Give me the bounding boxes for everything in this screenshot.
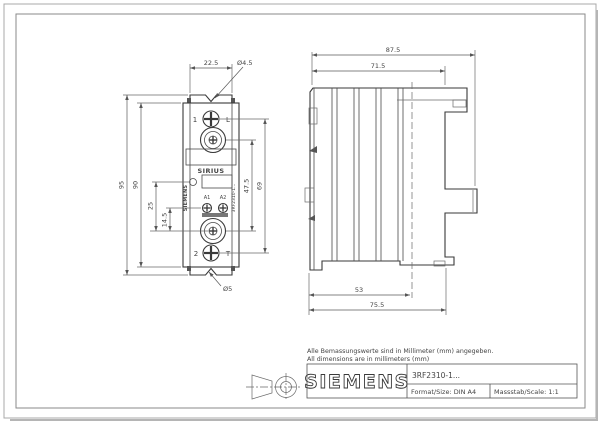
dim-depth-overall: 87.5: [386, 46, 400, 54]
dim-height-overall: 95: [118, 181, 126, 189]
a2-label: A2: [220, 195, 227, 201]
terminal-l-label: L: [226, 116, 230, 124]
dim-height-body: 90: [132, 181, 140, 189]
dim-ctrl-terminal: 14.5: [161, 213, 169, 227]
model-vertical-label: 3RF2310-1...: [231, 184, 237, 213]
tab-corner-mark: [231, 266, 235, 271]
terminal-t-label: T: [225, 250, 231, 258]
terminal-2-label: 2: [194, 250, 198, 258]
terminal-1-label: 1: [193, 116, 197, 124]
tab-corner-mark: [187, 266, 191, 271]
tab-corner-mark: [231, 98, 235, 103]
sirius-label: SIRIUS: [198, 167, 225, 175]
a1-label: A1: [204, 195, 211, 201]
note-line2-en: All dimensions are in millimeters (mm): [307, 356, 429, 363]
cad-drawing: 1 L SIRIUS A1 A2 SIEMENS 3RF2310-1...: [0, 0, 600, 424]
model-number: 3RF2310-1...: [412, 371, 460, 380]
scale-label: Massstab/Scale: 1:1: [494, 388, 559, 396]
dim-hole-top: Ø4.5: [237, 59, 252, 67]
dim-led-terminal: 25: [147, 202, 155, 210]
dim-depth-din: 53: [355, 286, 363, 294]
dim-terminal-centers: 47.5: [243, 179, 251, 193]
format-size-label: Format/Size: DIN A4: [411, 388, 476, 396]
terminal-bar: [202, 213, 228, 217]
tab-corner-mark: [187, 98, 191, 103]
dim-screw-centers: 69: [256, 182, 264, 190]
dim-hole-bottom: Ø5: [223, 285, 232, 293]
note-line1-de: Alle Bemassungswerte sind in Millimeter …: [307, 348, 493, 355]
drawing-sheet: 1 L SIRIUS A1 A2 SIEMENS 3RF2310-1...: [0, 0, 600, 424]
siemens-logo: SIEMENS: [304, 371, 410, 393]
dim-depth-body: 71.5: [371, 62, 385, 70]
siemens-vertical-label: SIEMENS: [183, 185, 189, 212]
dim-depth-front: 75.5: [370, 301, 384, 309]
dim-tab-width: 22.5: [204, 59, 218, 67]
page-border: [4, 4, 596, 418]
